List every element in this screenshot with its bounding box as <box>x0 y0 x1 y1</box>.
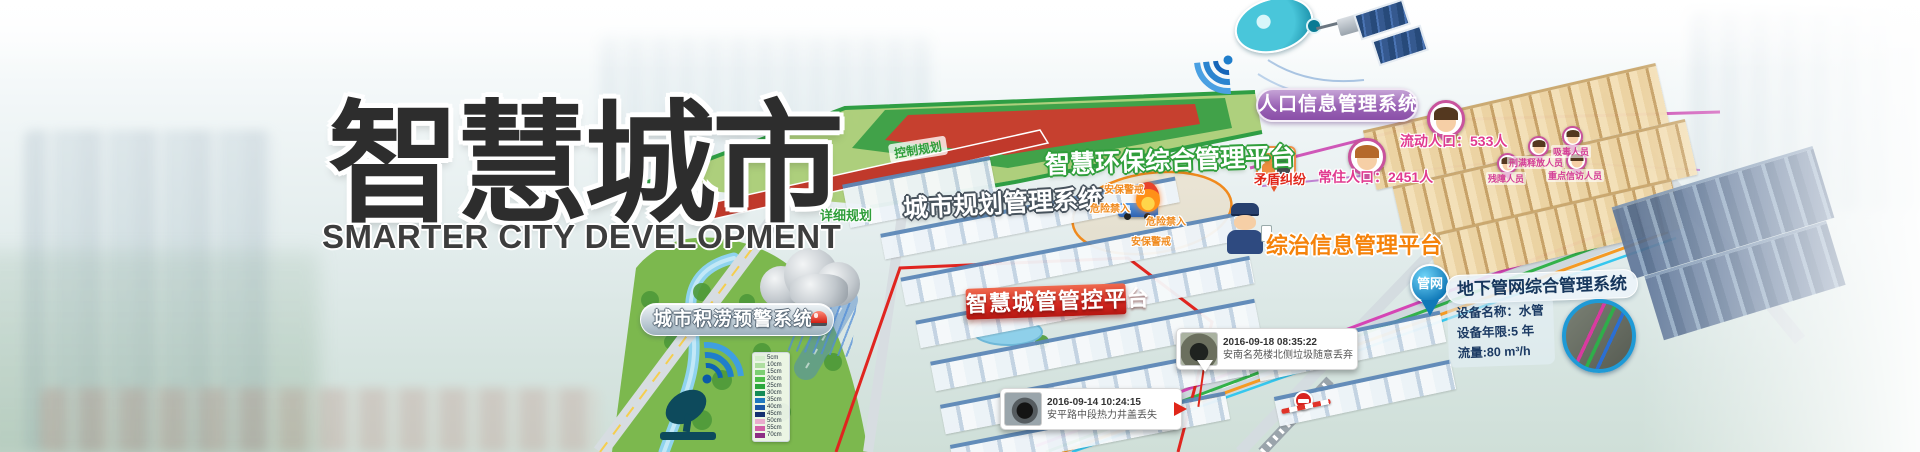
conflict-label: 矛盾纠纷 <box>1254 169 1306 188</box>
danger-keepout-label: 危险禁入 <box>1090 200 1130 215</box>
police-officer <box>1219 203 1271 257</box>
legend-row: 35cm <box>755 397 787 403</box>
callout-tail <box>1174 402 1194 416</box>
label-comprehensive-governance-platform[interactable]: 综治信息管理平台 <box>1266 228 1442 260</box>
focus-group-tag: 刑满释放人员 <box>1507 156 1565 169</box>
waterlog-label: 城市积涝预警系统 <box>653 309 813 330</box>
pipeline-info-panel: 设备名称：水管 设备年限:5 年 流量:80 m³/h <box>1447 296 1555 368</box>
legend-row: 40cm <box>755 404 787 410</box>
legend-row: 45cm <box>755 411 787 417</box>
pipeline-photo-circle <box>1562 299 1636 373</box>
detail-plan-tag: 详细规划 <box>820 205 872 224</box>
satellite-dish-icon <box>658 390 720 442</box>
floating-count-label: 流动人口：533人 <box>1400 131 1507 151</box>
event-time: 2016-09-18 08:35:22 <box>1223 336 1353 349</box>
legend-row: 5cm <box>755 355 787 361</box>
pipeline-device-age: 设备年限:5 年 <box>1457 320 1545 343</box>
legend-row: 50cm <box>755 418 787 424</box>
event-description: 安南名苑楼北侧垃圾随意丢弃 <box>1223 349 1353 362</box>
pin-focus-group[interactable] <box>1528 136 1549 157</box>
pipeline-pin[interactable]: 管网 <box>1410 264 1450 304</box>
pin-focus-group[interactable] <box>1562 126 1583 147</box>
focus-group-tag: 重点信访人员 <box>1546 169 1604 182</box>
legend-row: 20cm <box>755 376 787 382</box>
pipeline-flow: 流量:80 m³/h <box>1457 340 1545 363</box>
page-subtitle: SMARTER CITY DEVELOPMENT <box>322 218 841 256</box>
event-callout[interactable]: 2016-09-14 10:24:15 安平路中段热力井盖丢失 <box>1000 388 1182 430</box>
event-time: 2016-09-14 10:24:15 <box>1047 396 1157 409</box>
event-photo-manhole <box>1004 392 1042 426</box>
legend-row: 25cm <box>755 383 787 389</box>
smart-city-banner: 智慧城市 SMARTER CITY DEVELOPMENT 控制规划 详细规划 … <box>0 0 1920 452</box>
banner-city-management[interactable]: 智慧城管管控平台 <box>966 283 1127 320</box>
event-callout[interactable]: 2016-09-18 08:35:22 安南名苑楼北侧垃圾随意丢弃 <box>1176 328 1358 370</box>
siren-icon <box>811 311 827 326</box>
legend-row: 15cm <box>755 369 787 375</box>
legend-row: 70cm <box>755 432 787 438</box>
legend-row: 10cm <box>755 362 787 368</box>
callout-tail <box>1197 360 1213 380</box>
patrol-warning-label: 安保警戒 <box>1104 181 1144 196</box>
focus-group-tag: 残障人员 <box>1486 172 1526 185</box>
resident-count-label: 常住人口：2451人 <box>1318 167 1433 187</box>
patrol-warning-label: 安保警戒 <box>1131 233 1171 248</box>
event-description: 安平路中段热力井盖丢失 <box>1047 409 1157 422</box>
flood-depth-legend: 5cm10cm15cm20cm25cm30cm35cm40cm45cm50cm5… <box>752 352 790 442</box>
danger-keepout-label: 危险禁入 <box>1146 213 1186 228</box>
badge-waterlog-warning-system[interactable]: 城市积涝预警系统 <box>640 303 834 336</box>
legend-row: 55cm <box>755 425 787 431</box>
legend-row: 30cm <box>755 390 787 396</box>
